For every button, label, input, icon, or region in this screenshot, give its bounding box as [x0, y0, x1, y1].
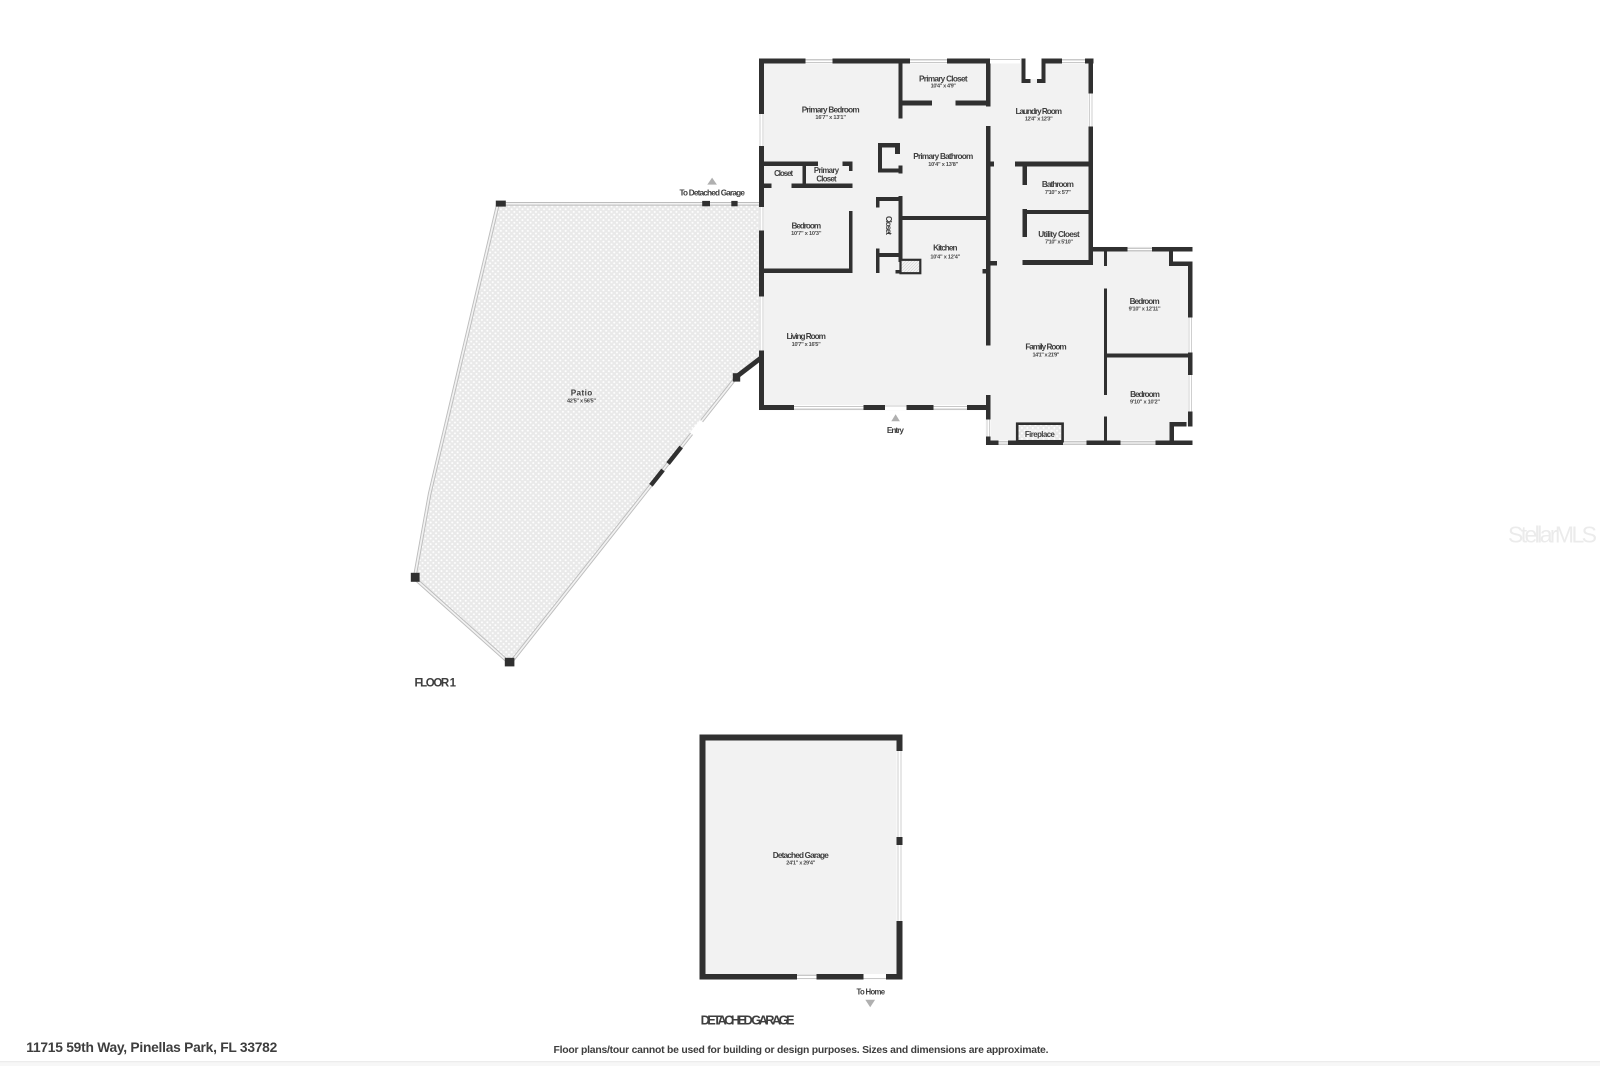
svg-text:Floor plans/tour cannot be use: Floor plans/tour cannot be used for buil…	[554, 1045, 1049, 1056]
svg-text:10'7" x 10'3": 10'7" x 10'3"	[791, 231, 822, 237]
svg-text:FLOOR 1: FLOOR 1	[415, 678, 457, 690]
svg-text:10'4" x 13'8": 10'4" x 13'8"	[928, 162, 958, 168]
svg-text:9'10" x 12'11": 9'10" x 12'11"	[1129, 306, 1161, 312]
svg-text:To Detached Garage: To Detached Garage	[679, 188, 745, 197]
svg-text:Closet: Closet	[816, 175, 837, 184]
svg-text:Family Room: Family Room	[1025, 342, 1066, 351]
svg-text:Detached Garage: Detached Garage	[773, 851, 829, 860]
svg-text:Bedroom: Bedroom	[1130, 390, 1160, 399]
svg-text:10'4" x 4'9": 10'4" x 4'9"	[931, 84, 957, 90]
svg-text:DETACHED GARAGE: DETACHED GARAGE	[701, 1013, 795, 1028]
svg-text:7'10" x 5'7": 7'10" x 5'7"	[1045, 190, 1071, 196]
svg-text:Fireplace: Fireplace	[1025, 430, 1056, 439]
svg-text:Closet: Closet	[884, 216, 893, 235]
svg-text:Laundry Room: Laundry Room	[1016, 107, 1063, 116]
svg-text:Living Room: Living Room	[786, 332, 826, 341]
svg-text:10'4" x 12'4": 10'4" x 12'4"	[930, 254, 960, 260]
svg-text:14'1" x 21'9": 14'1" x 21'9"	[1033, 352, 1060, 358]
svg-text:24'1" x 29'4": 24'1" x 29'4"	[786, 861, 815, 867]
svg-text:Primary Closet: Primary Closet	[919, 75, 968, 84]
svg-text:To Home: To Home	[857, 987, 886, 996]
svg-text:11715 59th Way, Pinellas Park,: 11715 59th Way, Pinellas Park, FL 33782	[26, 1040, 277, 1055]
svg-text:StellarMLS: StellarMLS	[1508, 522, 1597, 548]
svg-text:Entry: Entry	[887, 426, 904, 435]
svg-text:Kitchen: Kitchen	[933, 244, 957, 253]
svg-text:Primary Bedroom: Primary Bedroom	[802, 105, 860, 114]
svg-text:9'10" x 10'2": 9'10" x 10'2"	[1130, 399, 1160, 405]
svg-text:12'4" x 12'3": 12'4" x 12'3"	[1025, 117, 1053, 123]
svg-text:Primary Bathroom: Primary Bathroom	[913, 152, 973, 161]
svg-text:Patio: Patio	[571, 388, 593, 397]
svg-text:42'5" x 56'5": 42'5" x 56'5"	[567, 398, 596, 404]
svg-text:10'7" x 16'5": 10'7" x 16'5"	[792, 342, 821, 348]
svg-text:Utility Cloest: Utility Cloest	[1038, 230, 1080, 239]
svg-text:16'7" x 13'1": 16'7" x 13'1"	[815, 115, 846, 121]
svg-text:7'10" x 5'10": 7'10" x 5'10"	[1045, 239, 1073, 245]
svg-text:Closet: Closet	[774, 169, 793, 178]
svg-text:Bedroom: Bedroom	[791, 222, 821, 231]
svg-text:Bathroom: Bathroom	[1042, 180, 1074, 189]
svg-text:Bedroom: Bedroom	[1130, 297, 1160, 306]
